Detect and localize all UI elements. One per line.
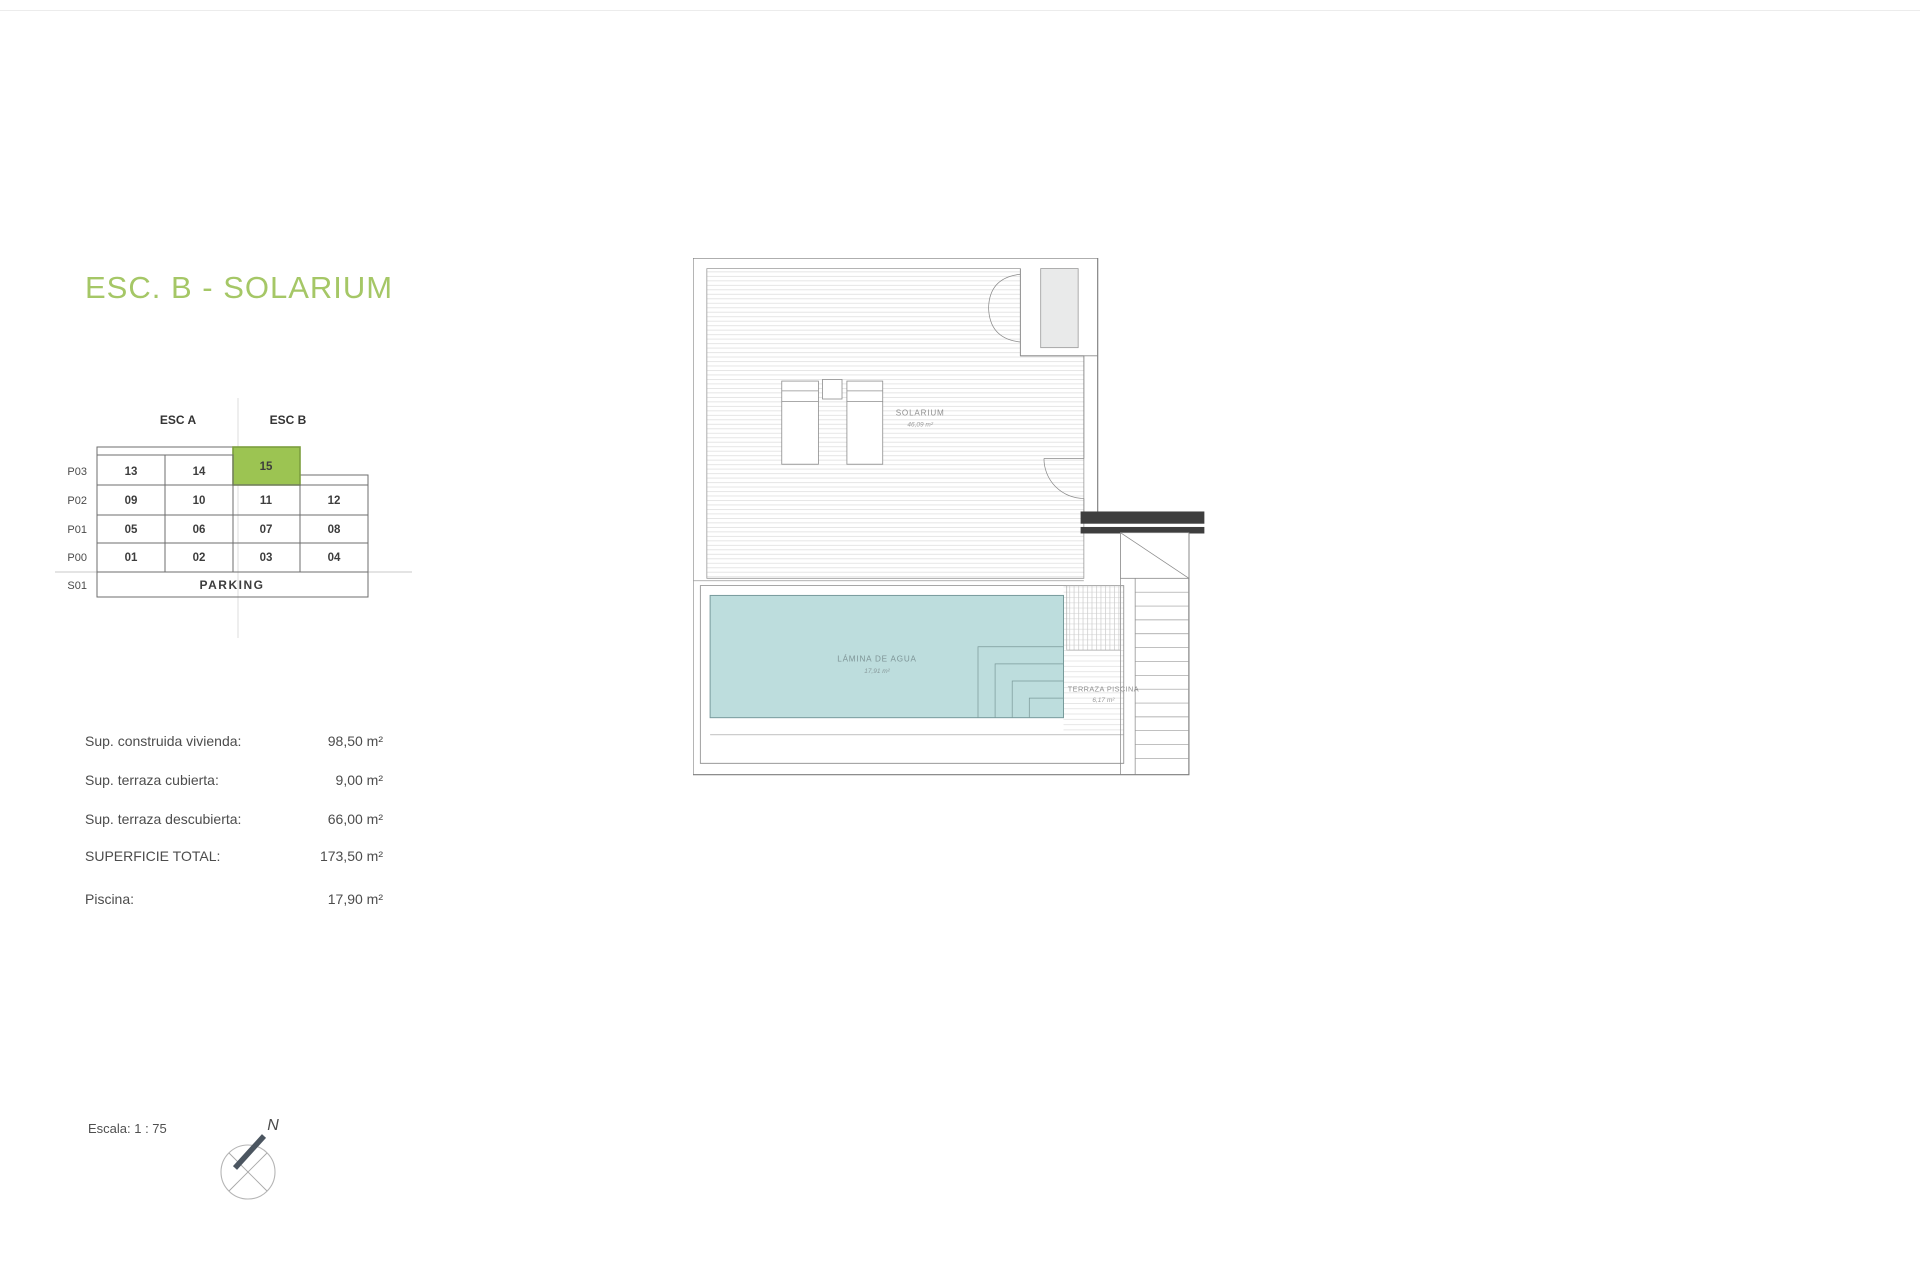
unit-number: 12	[328, 495, 341, 507]
row-label: P03	[67, 466, 87, 478]
spec-label: SUPERFICIE TOTAL:	[85, 848, 220, 864]
unit-number: 11	[260, 495, 273, 507]
header-esc-b: ESC B	[270, 413, 307, 427]
shaft-box	[1041, 269, 1078, 348]
row-label: P00	[67, 552, 87, 564]
spec-value: 98,50 m²	[328, 733, 383, 749]
plan-page: ESC. B - SOLARIUM ESC A ESC B	[0, 0, 1920, 1280]
unit-number: 14	[193, 466, 206, 478]
pool-side-steps	[1067, 586, 1121, 650]
room-label-terrace: TERRAZA PISCINA	[1068, 685, 1139, 694]
unit-number: 09	[125, 495, 138, 507]
unit-number: 04	[328, 552, 341, 564]
unit-matrix-diagram: ESC A ESC B P03 P02 P01 P00 S01	[40, 395, 420, 645]
row-label: P02	[67, 495, 87, 507]
spec-row: SUPERFICIE TOTAL: 173,50 m²	[85, 848, 383, 864]
room-area-solarium: 46,09 m²	[907, 422, 933, 429]
staircase	[1121, 533, 1189, 775]
unit-number: 08	[328, 524, 341, 536]
spec-label: Sup. construida vivienda:	[85, 733, 241, 749]
unit-number: 03	[260, 552, 273, 564]
parking-label: PARKING	[200, 578, 265, 592]
compass: N	[180, 1100, 300, 1220]
page-title: ESC. B - SOLARIUM	[85, 270, 393, 306]
unit-number: 06	[193, 524, 206, 536]
side-table	[822, 379, 842, 399]
spec-value: 17,90 m²	[328, 891, 383, 907]
row-label: P01	[67, 524, 87, 536]
spec-value: 9,00 m²	[336, 772, 383, 788]
room-area-terrace: 6,17 m²	[1092, 697, 1115, 704]
spec-label: Piscina:	[85, 891, 134, 907]
unit-number-highlighted: 15	[260, 461, 273, 473]
roof-strip	[97, 447, 233, 455]
spec-row: Piscina: 17,90 m²	[85, 891, 383, 907]
spec-row: Sup. terraza cubierta: 9,00 m²	[85, 772, 383, 788]
unit-number: 10	[193, 495, 206, 507]
compass-needle	[235, 1136, 264, 1168]
solarium-deck	[707, 269, 1084, 579]
roof-step-strip	[300, 475, 368, 485]
room-label-solarium: SOLARIUM	[896, 408, 945, 417]
spec-row: Sup. terraza descubierta: 66,00 m²	[85, 811, 383, 827]
spec-value: 66,00 m²	[328, 811, 383, 827]
spec-row: Sup. construida vivienda: 98,50 m²	[85, 733, 383, 749]
room-area-pool: 17,91 m²	[864, 668, 890, 675]
stair-treads	[1135, 592, 1189, 758]
scale-label: Escala: 1 : 75	[88, 1121, 167, 1136]
unit-number: 05	[125, 524, 138, 536]
floor-plan: SOLARIUM 46,09 m² LÁMINA DE AGUA 17,91 m…	[693, 258, 1206, 778]
room-label-pool: LÁMINA DE AGUA	[837, 653, 917, 663]
spec-label: Sup. terraza descubierta:	[85, 811, 241, 827]
unit-number: 01	[125, 552, 138, 564]
unit-number: 13	[125, 466, 138, 478]
spec-label: Sup. terraza cubierta:	[85, 772, 219, 788]
page-top-rule	[0, 10, 1920, 11]
balcony-rail-bar	[1081, 511, 1205, 523]
row-label: S01	[67, 580, 87, 592]
spec-value: 173,50 m²	[320, 848, 383, 864]
unit-number: 02	[193, 552, 206, 564]
header-esc-a: ESC A	[160, 413, 197, 427]
north-label: N	[267, 1117, 279, 1134]
unit-number: 07	[260, 524, 273, 536]
